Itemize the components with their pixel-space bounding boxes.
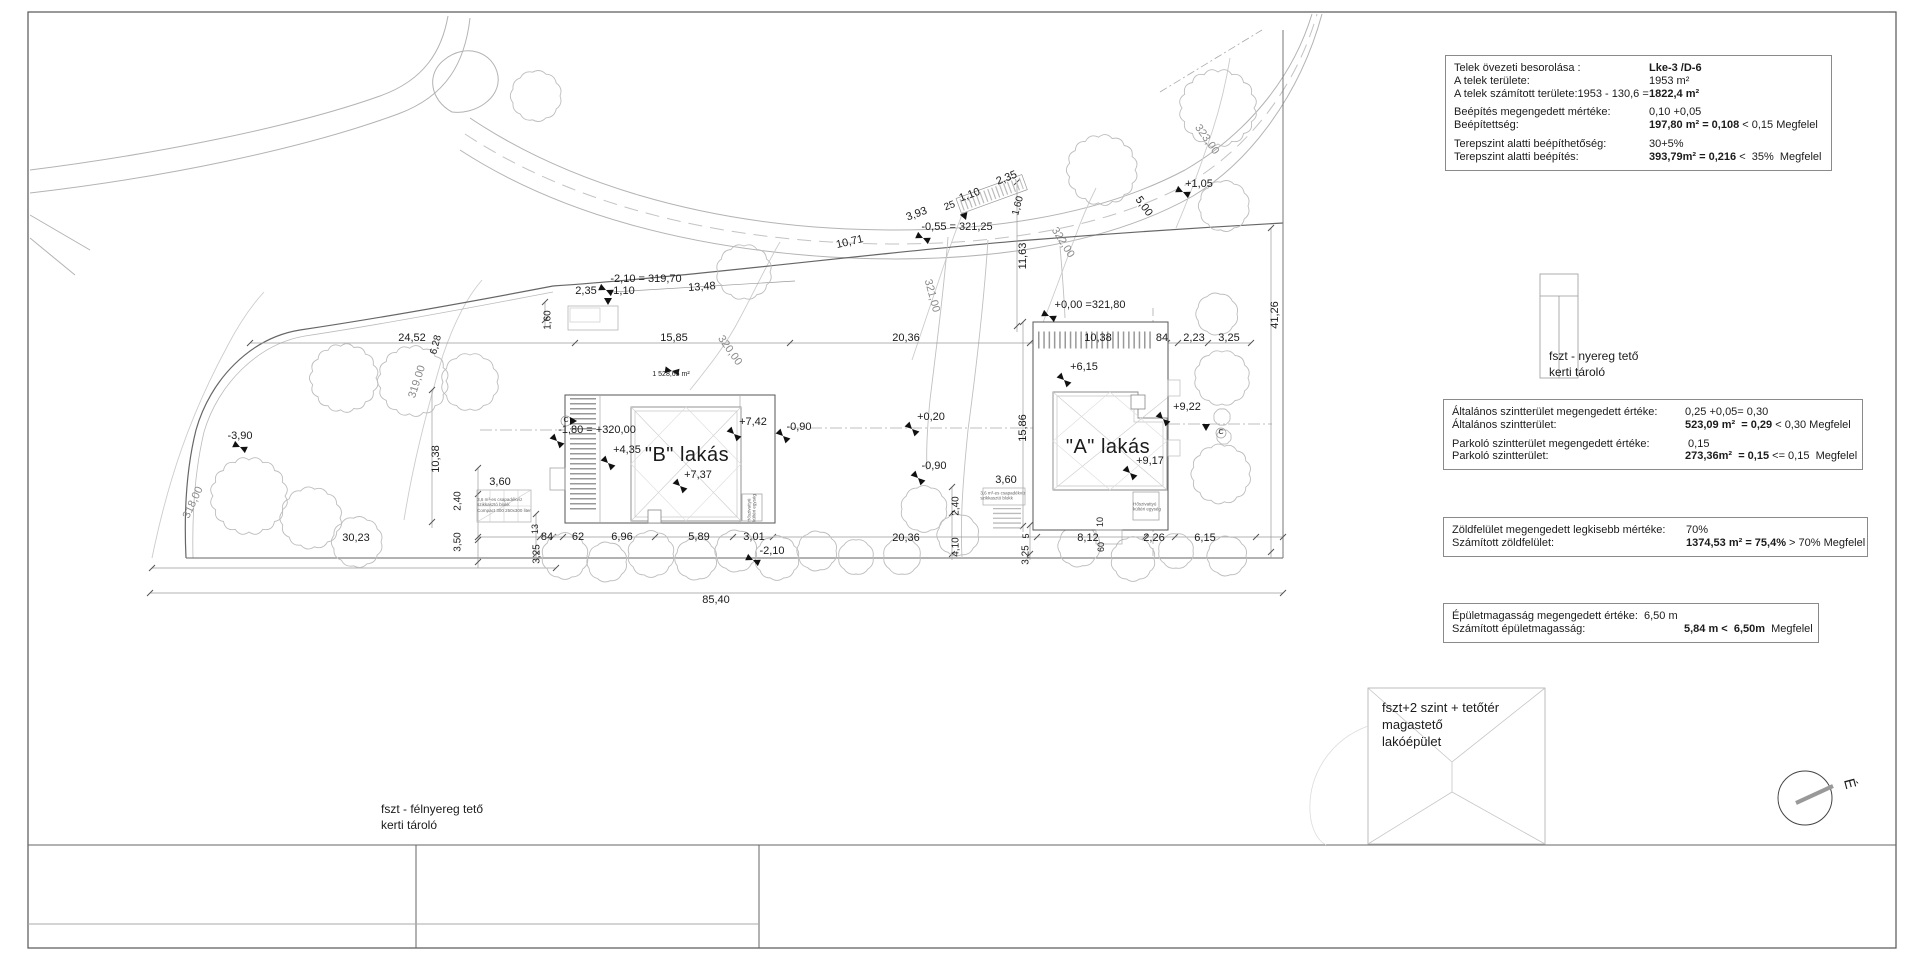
info-label: A telek számított területe:1953 - 130,6 … [1454,88,1649,101]
info-value: 523,09 m² = 0,29 < 0,30 Megfelel [1685,419,1851,432]
north-compass [1778,771,1833,825]
tree-icon [717,245,771,299]
info-label: A telek területe: [1454,75,1649,88]
tree-icon [542,533,588,580]
info-label: Terepszint alatti beépíthetőség: [1454,138,1649,151]
neighbour-house-se [1310,688,1545,845]
tree-icon [280,487,342,549]
tree-icon [1111,537,1154,582]
spot-elevation-marker-icon [232,441,248,453]
info-value: 393,79m² = 0,216 < 35% Megfelel [1649,151,1821,164]
tree-icon [628,531,674,578]
tree-icon [442,354,499,411]
info-label: Zöldfelület megengedett legkisebb mérték… [1452,524,1686,537]
tree-icon [1214,409,1230,425]
info-value: 1374,53 m² = 75,4% > 70% Megfelel [1686,537,1865,550]
info-value: 5,84 m < 6,50m Megfelel [1684,623,1813,636]
title-block [28,845,1896,948]
tree-icon [377,346,448,417]
spot-elevation-marker-icon [598,284,614,296]
drawing-sheet: 10,713,93251,102,35-0,55 = 321,251,6011,… [0,0,1920,960]
tree-icon [1180,70,1257,147]
info-value: 197,80 m² = 0,108 < 0,15 Megfelel [1649,119,1818,132]
tree-icon [1058,525,1100,567]
floor-area-info-box: Általános szintterület megengedett érték… [1443,399,1863,470]
building-height-info-box: Épületmagasság megengedett értéke:6,50 m… [1443,603,1819,643]
direction-triangle-icon [604,298,612,305]
info-value: 1953 m² [1649,75,1689,88]
info-value: 0,25 +0,05= 0,30 [1685,406,1768,419]
spot-elevation-marker-icon [1175,186,1191,198]
tree-icon [1159,534,1194,569]
zoning-info-box: Telek övezeti besorolása :Lke-3 /D-6A te… [1445,55,1832,171]
spot-elevation-marker-icon [915,232,931,244]
tree-icon [1207,536,1247,576]
info-label: Számított épületmagasság: [1452,623,1684,636]
info-label: Parkoló szintterület: [1452,450,1685,463]
info-value: Lke-3 /D-6 [1649,62,1702,75]
info-value: 30+5% [1649,138,1684,151]
info-label: Számított zöldfelület: [1452,537,1686,550]
info-label: Parkoló szintterület megengedett értéke: [1452,438,1685,451]
info-value: 6,50 m [1644,610,1678,623]
tree-icon [309,344,377,413]
info-label: Beépítés megengedett mértéke: [1454,106,1649,119]
tree-icon [510,71,561,122]
tree-icon [839,540,874,575]
info-value: 273,36m² = 0,15 <= 0,15 Megfelel [1685,450,1857,463]
tree-icon [1191,444,1251,504]
road-linework [30,14,1322,275]
spot-elevation-marker-icon [776,429,791,444]
spot-elevation-marker-icon [664,366,679,375]
building-b [550,395,775,523]
building-a [1033,322,1180,544]
tree-icon [884,538,921,575]
spot-elevation-marker-icon [550,434,565,449]
info-value: 70% [1686,524,1708,537]
tree-icon [937,514,979,556]
tree-icon [587,542,627,582]
spot-elevation-marker-icon [905,422,920,437]
tree-icon [331,517,382,568]
spot-elevation-marker-icon [745,554,761,566]
tree-icon [1195,351,1249,405]
direction-triangle-icon [1202,424,1210,431]
info-value: 0,15 [1685,438,1709,451]
info-value: 0,10 +0,05 [1649,106,1701,119]
spot-elevation-marker-icon [911,471,926,486]
green-area-info-box: Zöldfelület megengedett legkisebb mérték… [1443,517,1868,557]
info-label: Beépítettség: [1454,119,1649,132]
tree-icon [1196,293,1238,335]
tree-icon [1066,135,1137,206]
info-label: Telek övezeti besorolása : [1454,62,1649,75]
tree-icon [675,538,717,580]
info-label: Terepszint alatti beépítés: [1454,151,1649,164]
info-label: Általános szintterület megengedett érték… [1452,406,1685,419]
garden-storage-ne [1540,274,1578,378]
info-label: Általános szintterület: [1452,419,1685,432]
info-label: Épületmagasság megengedett értéke: [1452,610,1644,623]
tree-icon [211,458,288,535]
info-value: 1822,4 m² [1649,88,1699,101]
tree-icon [715,530,757,572]
